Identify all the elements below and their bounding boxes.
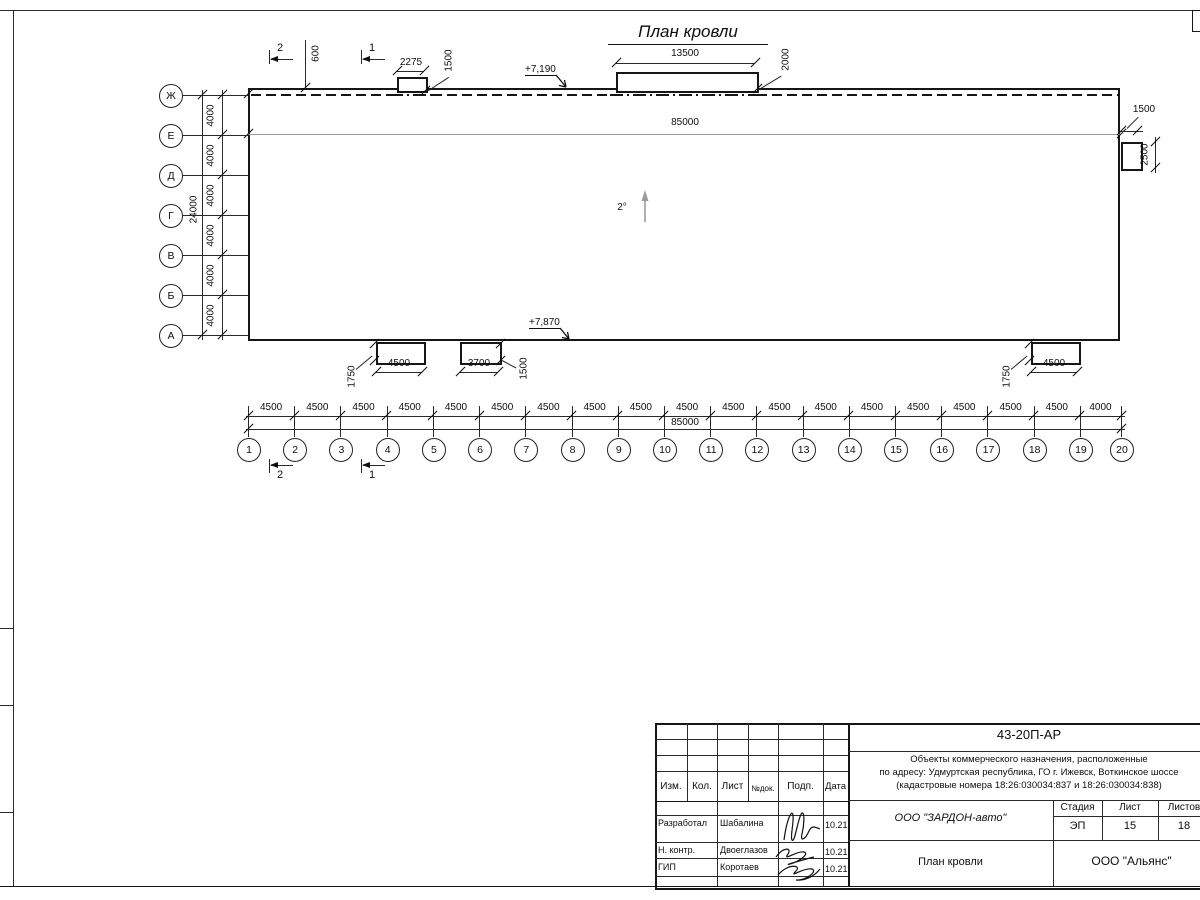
title-block-line bbox=[1053, 816, 1200, 817]
dim-4500-right-label: 4500 bbox=[1031, 358, 1077, 369]
column-dim-label: 4500 bbox=[895, 402, 941, 413]
tb-role: ГИП bbox=[658, 862, 676, 873]
column-dim-label: 4500 bbox=[988, 402, 1034, 413]
grid-column-bubble: 18 bbox=[1023, 438, 1047, 462]
grid-row-bubble: А bbox=[159, 324, 183, 348]
dim-2500-label: 2500 bbox=[1140, 138, 1151, 172]
grid-row-bubble: Б bbox=[159, 284, 183, 308]
title-block-line bbox=[655, 755, 848, 756]
tb-date: 10.21 bbox=[825, 820, 848, 831]
row-axis-line bbox=[181, 335, 248, 336]
row-axis-line bbox=[181, 215, 248, 216]
frame-top-line bbox=[0, 10, 1200, 11]
grid-column-bubble: 10 bbox=[653, 438, 677, 462]
grid-row-bubble: Д bbox=[159, 164, 183, 188]
section-1-label: 1 bbox=[369, 42, 375, 54]
tb-sheets-label: Листов bbox=[1158, 802, 1200, 813]
section-arrow-icon bbox=[270, 56, 278, 62]
column-dim-label: 4500 bbox=[248, 402, 294, 413]
grid-column-bubble: 17 bbox=[976, 438, 1000, 462]
dim-2275-label: 2275 bbox=[385, 57, 437, 68]
frame-margin-tick bbox=[0, 628, 13, 629]
title-block-line bbox=[717, 723, 718, 886]
column-total-line bbox=[246, 429, 1125, 430]
tb-col-data: Дата bbox=[823, 781, 848, 792]
grid-column-bubble: 15 bbox=[884, 438, 908, 462]
column-axis-stem bbox=[1121, 406, 1122, 437]
row-axis-line bbox=[181, 95, 248, 96]
column-dim-label: 4500 bbox=[525, 402, 571, 413]
grid-row-bubble: Г bbox=[159, 204, 183, 228]
tb-name: Шабалина bbox=[720, 818, 763, 829]
column-dim-label: 4500 bbox=[803, 402, 849, 413]
dim-1500-leader bbox=[502, 360, 517, 368]
dim-1500-right-label: 1500 bbox=[1124, 104, 1164, 115]
tb-project-line1: Объекты коммерческого назначения, распол… bbox=[848, 754, 1200, 765]
section-arrow-icon bbox=[362, 462, 370, 468]
grid-column-bubble: 20 bbox=[1110, 438, 1134, 462]
row-dim-label: 4000 bbox=[206, 218, 217, 252]
tb-col-ndok: №док. bbox=[748, 783, 778, 794]
section-2-label: 2 bbox=[277, 42, 283, 54]
dim-4500-line bbox=[1031, 372, 1077, 373]
tb-date: 10.21 bbox=[825, 864, 848, 875]
dim-1500-right-line bbox=[1119, 131, 1143, 132]
column-dim-label: 4500 bbox=[294, 402, 340, 413]
title-block-line bbox=[655, 801, 848, 802]
dim-13500-line bbox=[616, 63, 755, 64]
tb-name: Коротаев bbox=[720, 862, 759, 873]
section-1-label: 1 bbox=[369, 469, 375, 481]
row-dim-label: 4000 bbox=[206, 138, 217, 172]
tb-project-line2: по адресу: Удмуртская республика, ГО г. … bbox=[848, 767, 1200, 778]
drawing-title: План кровли bbox=[608, 22, 768, 45]
title-block-line bbox=[655, 739, 848, 740]
column-dim-label: 4500 bbox=[341, 402, 387, 413]
title-block-line bbox=[655, 771, 848, 772]
grid-column-bubble: 7 bbox=[514, 438, 538, 462]
tb-contractor: ООО "Альянс" bbox=[1053, 856, 1200, 867]
column-dim-label: 4500 bbox=[849, 402, 895, 413]
grid-row-bubble: Ж bbox=[159, 84, 183, 108]
dim-1750-right-label: 1750 bbox=[1002, 360, 1013, 394]
dim-4500-left-label: 4500 bbox=[376, 358, 422, 369]
tb-role: Н. контр. bbox=[658, 845, 695, 856]
tb-col-kol: Кол. bbox=[687, 781, 717, 792]
column-dim-label: 4500 bbox=[479, 402, 525, 413]
grid-column-bubble: 12 bbox=[745, 438, 769, 462]
signature-dvoeglazov-korotaev bbox=[768, 841, 826, 885]
frame-corner-box bbox=[1192, 10, 1200, 32]
elevation-top-label: +7,190 bbox=[525, 64, 556, 76]
row-axis-line bbox=[181, 295, 248, 296]
grid-column-bubble: 1 bbox=[237, 438, 261, 462]
column-dim-label: 4500 bbox=[618, 402, 664, 413]
elevation-arrow-icon bbox=[554, 73, 572, 91]
row-axis-line bbox=[181, 175, 248, 176]
tb-sheet-label: Лист bbox=[1102, 802, 1158, 813]
slope-arrow-icon bbox=[638, 188, 652, 224]
column-dim-label: 4500 bbox=[433, 402, 479, 413]
elevation-arrow-icon bbox=[558, 326, 576, 344]
top-total-dim-label: 85000 bbox=[655, 117, 715, 128]
frame-margin-tick bbox=[0, 812, 13, 813]
title-block-line bbox=[848, 840, 1200, 841]
column-dim-label: 4500 bbox=[1034, 402, 1080, 413]
axis-e-line bbox=[248, 134, 1121, 135]
dim-4500-line bbox=[376, 372, 422, 373]
dim-3700-line bbox=[460, 372, 498, 373]
slope-label: 2° bbox=[612, 202, 632, 213]
drawing-sheet: План кровли 85000 2 600 1 2275 1500 +7,1… bbox=[0, 0, 1200, 900]
column-dim-label: 4500 bbox=[664, 402, 710, 413]
column-dim-label: 4500 bbox=[710, 402, 756, 413]
dim-2275-line bbox=[396, 71, 424, 72]
dim-600-extension bbox=[305, 40, 306, 89]
title-block-line bbox=[848, 800, 1200, 801]
row-dim-label: 4000 bbox=[206, 258, 217, 292]
row-dim-label: 4000 bbox=[206, 298, 217, 332]
dim-13500-label: 13500 bbox=[655, 48, 715, 59]
frame-margin-tick bbox=[0, 705, 13, 706]
column-dim-label: 4500 bbox=[572, 402, 618, 413]
tb-name: Двоеглазов bbox=[720, 845, 768, 856]
section-arrow-icon bbox=[362, 56, 370, 62]
column-dim-label: 4500 bbox=[941, 402, 987, 413]
tb-sheet-value: 15 bbox=[1102, 821, 1158, 832]
grid-column-bubble: 4 bbox=[376, 438, 400, 462]
grid-column-bubble: 16 bbox=[930, 438, 954, 462]
tb-project-line3: (кадастровые номера 18:26:030034:837 и 1… bbox=[848, 780, 1200, 791]
grid-column-bubble: 11 bbox=[699, 438, 723, 462]
grid-column-bubble: 3 bbox=[329, 438, 353, 462]
dim-2000-label: 2000 bbox=[781, 43, 792, 77]
grid-column-bubble: 6 bbox=[468, 438, 492, 462]
tb-role: Разработал bbox=[658, 818, 707, 829]
dim-1500-right-leader bbox=[1127, 117, 1139, 129]
elevation-bottom-label: +7,870 bbox=[529, 317, 560, 329]
grid-column-bubble: 2 bbox=[283, 438, 307, 462]
column-dim-label: 4500 bbox=[387, 402, 433, 413]
tb-doc-number: 43-20П-АР bbox=[848, 729, 1200, 740]
grid-column-bubble: 13 bbox=[792, 438, 816, 462]
tb-col-izm: Изм. bbox=[655, 781, 687, 792]
tb-client: ООО "ЗАРДОН-авто" bbox=[848, 813, 1053, 824]
grid-column-bubble: 19 bbox=[1069, 438, 1093, 462]
frame-left-line bbox=[13, 10, 14, 886]
grid-column-bubble: 5 bbox=[422, 438, 446, 462]
row-total-dim-label: 24000 bbox=[189, 188, 200, 232]
tb-col-podp: Подп. bbox=[778, 781, 823, 792]
section-2-label: 2 bbox=[277, 469, 283, 481]
grid-row-bubble: В bbox=[159, 244, 183, 268]
section-arrow-icon bbox=[270, 462, 278, 468]
tb-stage-label: Стадия bbox=[1053, 802, 1102, 813]
dim-1500-top-label: 1500 bbox=[444, 44, 455, 78]
grid-column-bubble: 8 bbox=[561, 438, 585, 462]
row-axis-line bbox=[181, 135, 248, 136]
row-dim-label: 4000 bbox=[206, 98, 217, 132]
tb-col-list: Лист bbox=[717, 781, 748, 792]
bottom-total-dim-label: 85000 bbox=[645, 417, 725, 428]
roof-structure-box bbox=[616, 72, 759, 93]
column-dim-label: 4000 bbox=[1077, 402, 1123, 413]
grid-row-bubble: Е bbox=[159, 124, 183, 148]
tb-stage-value: ЭП bbox=[1053, 821, 1102, 832]
grid-column-bubble: 14 bbox=[838, 438, 862, 462]
dim-600-label: 600 bbox=[311, 37, 322, 71]
row-axis-line bbox=[181, 255, 248, 256]
tb-date: 10.21 bbox=[825, 847, 848, 858]
column-dim-label: 4500 bbox=[757, 402, 803, 413]
tb-sheets-value: 18 bbox=[1158, 821, 1200, 832]
title-block-line bbox=[848, 751, 1200, 752]
tb-drawing-title: План кровли bbox=[848, 857, 1053, 868]
dim-1500-bottom-label: 1500 bbox=[519, 352, 530, 386]
grid-column-bubble: 9 bbox=[607, 438, 631, 462]
row-dim-label: 4000 bbox=[206, 178, 217, 212]
dim-1750-left-label: 1750 bbox=[347, 360, 358, 394]
